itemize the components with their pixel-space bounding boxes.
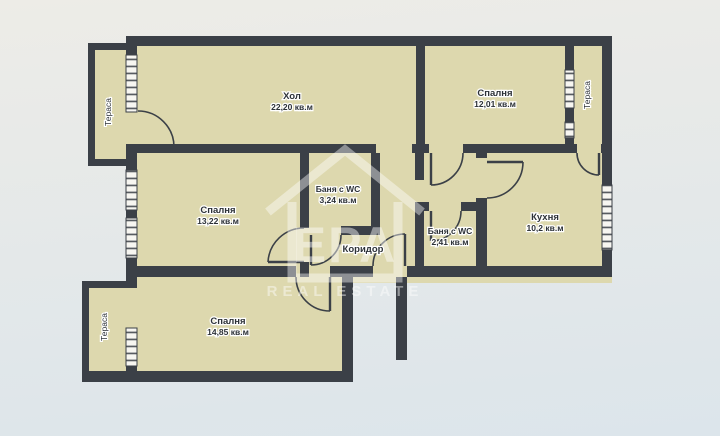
label-kitchen-area: 10,2 кв.м <box>526 223 563 233</box>
label-corridor: Коридор <box>343 244 384 255</box>
label-bath-large-name: Баня с WC <box>316 184 361 194</box>
wall-segment <box>476 153 487 158</box>
wall-segment <box>415 153 424 180</box>
floorplan-canvas: ЕРА REAL ESTATE Хол 22,20 кв.м Спалня 12… <box>0 0 720 436</box>
window-kitchen <box>602 185 612 250</box>
label-living-name: Хол <box>283 91 301 102</box>
wall-segment <box>412 144 429 153</box>
wall-segment <box>416 36 425 144</box>
wall-segment <box>126 36 612 46</box>
window-bedroom-top-terrace-2 <box>565 122 574 138</box>
wall-segment <box>82 281 89 382</box>
wall-segment <box>82 281 133 288</box>
window-bedroom-left-1 <box>126 170 137 210</box>
window-bedroom-top-terrace-1 <box>565 70 574 108</box>
wall-segment <box>565 36 574 70</box>
label-bath-small-area: 2,41 кв.м <box>431 237 468 247</box>
window-bedroom-left-2 <box>126 218 137 258</box>
label-bedroom-bottom-area: 14,85 кв.м <box>207 327 249 337</box>
wall-segment <box>88 159 135 166</box>
window-bedroom-bottom <box>126 328 137 366</box>
wall-segment <box>126 266 296 277</box>
label-kitchen-name: Кухня <box>531 212 559 223</box>
window-terrace-door-living <box>126 55 137 112</box>
wall-segment <box>82 371 353 382</box>
wall-segment <box>461 202 487 211</box>
wall-segment <box>126 210 137 218</box>
label-bedroom-left-name: Спалня <box>200 205 235 216</box>
label-terrace-right: Тераса <box>582 81 592 109</box>
wall-segment <box>601 144 612 153</box>
wall-segment <box>565 138 574 153</box>
wall-segment <box>88 43 95 166</box>
label-bedroom-left-area: 13,22 кв.м <box>197 216 239 226</box>
wall-segment <box>88 43 135 50</box>
label-bedroom-bottom-name: Спалня <box>210 316 245 327</box>
label-bath-small-name: Баня с WC <box>428 226 473 236</box>
wall-segment <box>463 144 577 153</box>
watermark-tagline: REAL ESTATE <box>267 283 424 300</box>
label-bedroom-top-name: Спалня <box>477 88 512 99</box>
wall-segment <box>565 108 574 122</box>
label-terrace-left-bottom: Тераса <box>99 313 109 341</box>
label-bath-large-area: 3,24 кв.м <box>319 195 356 205</box>
label-living-area: 22,20 кв.м <box>271 102 313 112</box>
label-terrace-left-top: Тераса <box>103 98 113 126</box>
floorplan-svg: ЕРА REAL ESTATE Хол 22,20 кв.м Спалня 12… <box>0 0 720 436</box>
label-bedroom-top-area: 12,01 кв.м <box>474 99 516 109</box>
wall-segment <box>407 266 612 277</box>
